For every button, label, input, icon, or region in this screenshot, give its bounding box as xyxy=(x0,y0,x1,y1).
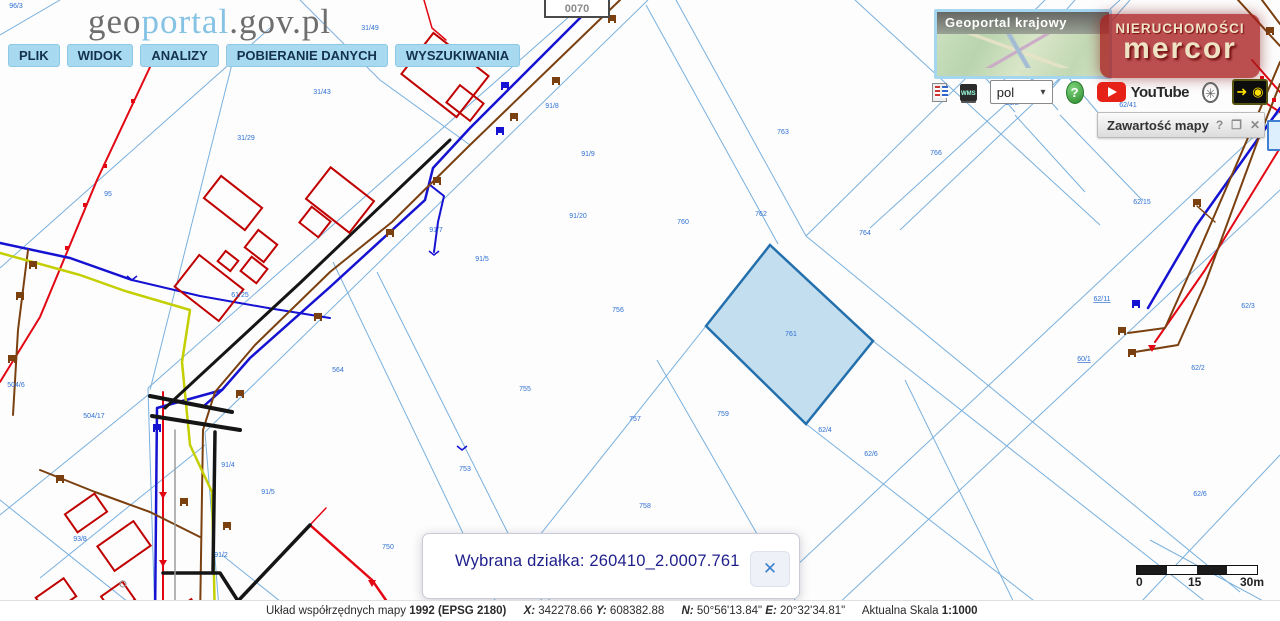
parcel-number-label: 91/5 xyxy=(475,256,489,263)
menu-item-analizy[interactable]: ANALIZY xyxy=(140,44,218,67)
marker-leg xyxy=(1124,333,1126,335)
y-value: 608382.88 xyxy=(610,605,664,617)
scale-start-label: 0 xyxy=(1136,575,1143,589)
chevron-down-icon: ▾ xyxy=(1041,87,1046,98)
marker-leg xyxy=(223,528,225,530)
geoportal-logo[interactable]: geoportal.gov.pl xyxy=(88,2,331,42)
panel-help-icon[interactable]: ? xyxy=(1212,118,1227,132)
marker-leg xyxy=(320,319,322,321)
marker-leg xyxy=(507,88,509,90)
menu-item-widok[interactable]: WIDOK xyxy=(67,44,134,67)
legend-grid-icon[interactable] xyxy=(932,83,947,102)
brown-utility-marker-icon xyxy=(510,113,518,119)
brown-utility-marker-icon xyxy=(1193,199,1201,205)
e-value: 20°32'34.81" xyxy=(780,605,845,617)
brown-utility-marker-icon xyxy=(1118,327,1126,333)
parcel-number-label: 764 xyxy=(859,230,871,237)
brown-utility-marker-icon xyxy=(29,261,37,267)
scale-mid-label: 15 xyxy=(1188,575,1201,589)
parcel-number-label: 763 xyxy=(777,129,789,136)
logo-part-gov: .gov.pl xyxy=(229,2,331,41)
red-node-marker-icon xyxy=(65,246,69,250)
overview-mini-map[interactable]: Geoportal krajowy xyxy=(934,9,1112,79)
e-label: E: xyxy=(765,605,777,617)
scale-label: Aktualna Skala xyxy=(862,605,939,617)
parcel-number-label: 91/8 xyxy=(545,103,559,110)
parcel-number-label: 91/20 xyxy=(569,213,587,220)
panel-expand-tab[interactable] xyxy=(1267,120,1280,151)
parcel-number-label: 62/6 xyxy=(864,451,878,458)
red-node-marker-icon xyxy=(131,99,135,103)
marker-leg xyxy=(1134,355,1136,357)
visibility-toggle[interactable]: ➜ ◉ xyxy=(1232,79,1268,105)
parcel-number-label: 62/3 xyxy=(1241,303,1255,310)
parcel-number-label: 504/17 xyxy=(83,413,105,420)
circled-star-icon[interactable]: ✳ xyxy=(1202,82,1219,103)
marker-leg xyxy=(180,504,182,506)
brown-utility-marker-icon xyxy=(223,522,231,528)
marker-leg xyxy=(608,21,610,23)
marker-leg xyxy=(439,183,441,185)
marker-leg xyxy=(392,235,394,237)
parcel-number-label: 756 xyxy=(612,307,624,314)
brown-utility-marker-icon xyxy=(1128,349,1136,355)
youtube-button[interactable]: YouTube xyxy=(1097,82,1189,102)
marker-leg xyxy=(56,481,58,483)
parcel-number-label: 761 xyxy=(785,331,797,338)
n-value: 50°56'13.84" xyxy=(697,605,762,617)
map-contents-title: Zawartość mapy xyxy=(1098,118,1212,133)
parcel-number-label: 564 xyxy=(332,367,344,374)
marker-leg xyxy=(22,298,24,300)
selected-parcel-popup: Wybrana działka: 260410_2.0007.761 ✕ xyxy=(422,533,800,599)
parcel-number-label: 95 xyxy=(104,191,112,198)
marker-leg xyxy=(14,361,16,363)
red-node-marker-icon xyxy=(83,203,87,207)
marker-leg xyxy=(62,481,64,483)
marker-leg xyxy=(558,83,560,85)
map-contents-panel-bar[interactable]: Zawartość mapy ? ❐ ✕ xyxy=(1097,112,1265,138)
parcel-number-label: 60/1 xyxy=(1077,356,1091,363)
parcel-number-label: 755 xyxy=(519,386,531,393)
map-toolbar: WMS pol▾ ? YouTube ✳ ➜ ◉ xyxy=(932,79,1268,105)
parcel-number-label: 31/43 xyxy=(313,89,331,96)
brown-utility-marker-icon xyxy=(1266,27,1274,33)
parcel-number-label: 62/2 xyxy=(1191,365,1205,372)
blue-utility-marker-icon xyxy=(501,82,509,88)
parcel-number-label: 762 xyxy=(755,211,767,218)
youtube-play-icon xyxy=(1097,82,1126,102)
brown-utility-marker-icon xyxy=(386,229,394,235)
n-label: N: xyxy=(682,605,694,617)
parcel-number-label: 62/15 xyxy=(1133,199,1151,206)
marker-leg xyxy=(229,528,231,530)
x-label: X: xyxy=(524,605,536,617)
scale-bar: 0 15 30m xyxy=(1136,565,1260,589)
language-value: pol xyxy=(997,85,1014,100)
marker-leg xyxy=(501,88,503,90)
menu-item-pobieranie-danych[interactable]: POBIERANIE DANYCH xyxy=(226,44,388,67)
brown-utility-marker-icon xyxy=(8,355,16,361)
youtube-label: YouTube xyxy=(1131,84,1189,101)
brown-utility-marker-icon xyxy=(552,77,560,83)
marker-leg xyxy=(16,298,18,300)
popup-close-button[interactable]: ✕ xyxy=(750,551,790,587)
arrow-icon: ➜ xyxy=(1236,82,1247,102)
panel-restore-icon[interactable]: ❐ xyxy=(1227,118,1246,132)
scale-end-label: 30m xyxy=(1240,575,1264,589)
marker-leg xyxy=(433,183,435,185)
marker-leg xyxy=(1266,33,1268,35)
parcel-number-label: 750 xyxy=(382,544,394,551)
brown-utility-marker-icon xyxy=(236,390,244,396)
marker-leg xyxy=(8,361,10,363)
parcel-number-label: 753 xyxy=(459,466,471,473)
marker-leg xyxy=(1118,333,1120,335)
marker-leg xyxy=(614,21,616,23)
brown-utility-marker-icon xyxy=(433,177,441,183)
parcel-number-label: 31/29 xyxy=(237,135,255,142)
parcel-number-label: 766 xyxy=(930,150,942,157)
marker-leg xyxy=(516,119,518,121)
red-node-marker-icon xyxy=(103,164,107,168)
x-value: 342278.66 xyxy=(538,605,592,617)
marker-leg xyxy=(159,430,161,432)
blue-utility-marker-icon xyxy=(496,127,504,133)
selected-parcel-text: Wybrana działka: 260410_2.0007.761 xyxy=(455,552,740,571)
menu-item-plik[interactable]: PLIK xyxy=(8,44,60,67)
blue-utility-marker-icon xyxy=(153,424,161,430)
parcel-number-label: 760 xyxy=(677,219,689,226)
parcel-number-label: 757 xyxy=(629,416,641,423)
parcel-number-label: 504/6 xyxy=(7,382,25,389)
marker-leg xyxy=(502,133,504,135)
crs-prefix: Układ współrzędnych mapy xyxy=(266,605,406,617)
language-select[interactable]: pol▾ xyxy=(990,80,1053,104)
logo-part-geo: geo xyxy=(88,2,142,41)
eye-icon: ◉ xyxy=(1252,82,1263,102)
marker-leg xyxy=(1193,205,1195,207)
blue-utility-marker-icon xyxy=(1132,300,1140,306)
parcel-number-label: 62/6 xyxy=(1193,491,1207,498)
parcel-number-label: 91/4 xyxy=(221,462,235,469)
geoportal-app: 96/331/4931/4331/299591/891/991/2091/791… xyxy=(0,0,1280,621)
parcel-number-label: 61/25 xyxy=(231,292,249,299)
marker-leg xyxy=(510,119,512,121)
y-label: Y: xyxy=(596,605,607,617)
watermark-mercor-label: mercor xyxy=(1100,36,1260,62)
status-bar: Układ współrzędnych mapy 1992 (EPSG 2180… xyxy=(0,600,1280,621)
mercor-watermark: NIERUCHOMOŚCI mercor xyxy=(1100,14,1260,78)
marker-leg xyxy=(552,83,554,85)
marker-leg xyxy=(35,267,37,269)
parcel-number-label: 96/3 xyxy=(9,3,23,10)
parcel-number-label: 62/4 xyxy=(818,427,832,434)
parcel-number-label: 758 xyxy=(639,503,651,510)
marker-leg xyxy=(1128,355,1130,357)
parcel-number-label: 31/49 xyxy=(361,25,379,32)
help-button[interactable]: ? xyxy=(1066,81,1084,104)
brown-utility-marker-icon xyxy=(314,313,322,319)
panel-close-icon[interactable]: ✕ xyxy=(1246,118,1264,132)
mini-map-title: Geoportal krajowy xyxy=(937,12,1109,34)
marker-leg xyxy=(496,133,498,135)
marker-leg xyxy=(186,504,188,506)
scale-bar-segments xyxy=(1136,565,1258,575)
main-menu: PLIK WIDOK ANALIZY POBIERANIE DANYCH WYS… xyxy=(8,44,520,67)
marker-leg xyxy=(1138,306,1140,308)
brown-utility-marker-icon xyxy=(56,475,64,481)
marker-leg xyxy=(242,396,244,398)
wms-monitor-icon[interactable]: WMS xyxy=(960,84,977,101)
marker-leg xyxy=(236,396,238,398)
marker-leg xyxy=(1199,205,1201,207)
parcel-number-label: 62/11 xyxy=(1094,296,1111,303)
menu-item-wyszukiwania[interactable]: WYSZUKIWANIA xyxy=(395,44,520,67)
parcel-number-label: 91/7 xyxy=(429,227,443,234)
logo-part-portal: portal xyxy=(142,2,230,41)
marker-leg xyxy=(153,430,155,432)
parcel-number-label: 93/8 xyxy=(73,536,87,543)
marker-leg xyxy=(1272,33,1274,35)
marker-leg xyxy=(314,319,316,321)
brown-utility-marker-icon xyxy=(16,292,24,298)
parcel-number-label: 91/5 xyxy=(261,489,275,496)
marker-leg xyxy=(29,267,31,269)
scale-value: 1:1000 xyxy=(942,605,978,617)
crs-system: 1992 (EPSG 2180) xyxy=(409,605,506,617)
marker-leg xyxy=(386,235,388,237)
map-sheet-label: 0070 xyxy=(544,0,610,18)
parcel-number-label: 91/9 xyxy=(581,151,595,158)
brown-utility-marker-icon xyxy=(180,498,188,504)
parcel-number-label: 91/2 xyxy=(214,552,228,559)
parcel-number-label: 759 xyxy=(717,411,729,418)
red-node-marker-icon xyxy=(1272,98,1276,102)
marker-leg xyxy=(1132,306,1134,308)
